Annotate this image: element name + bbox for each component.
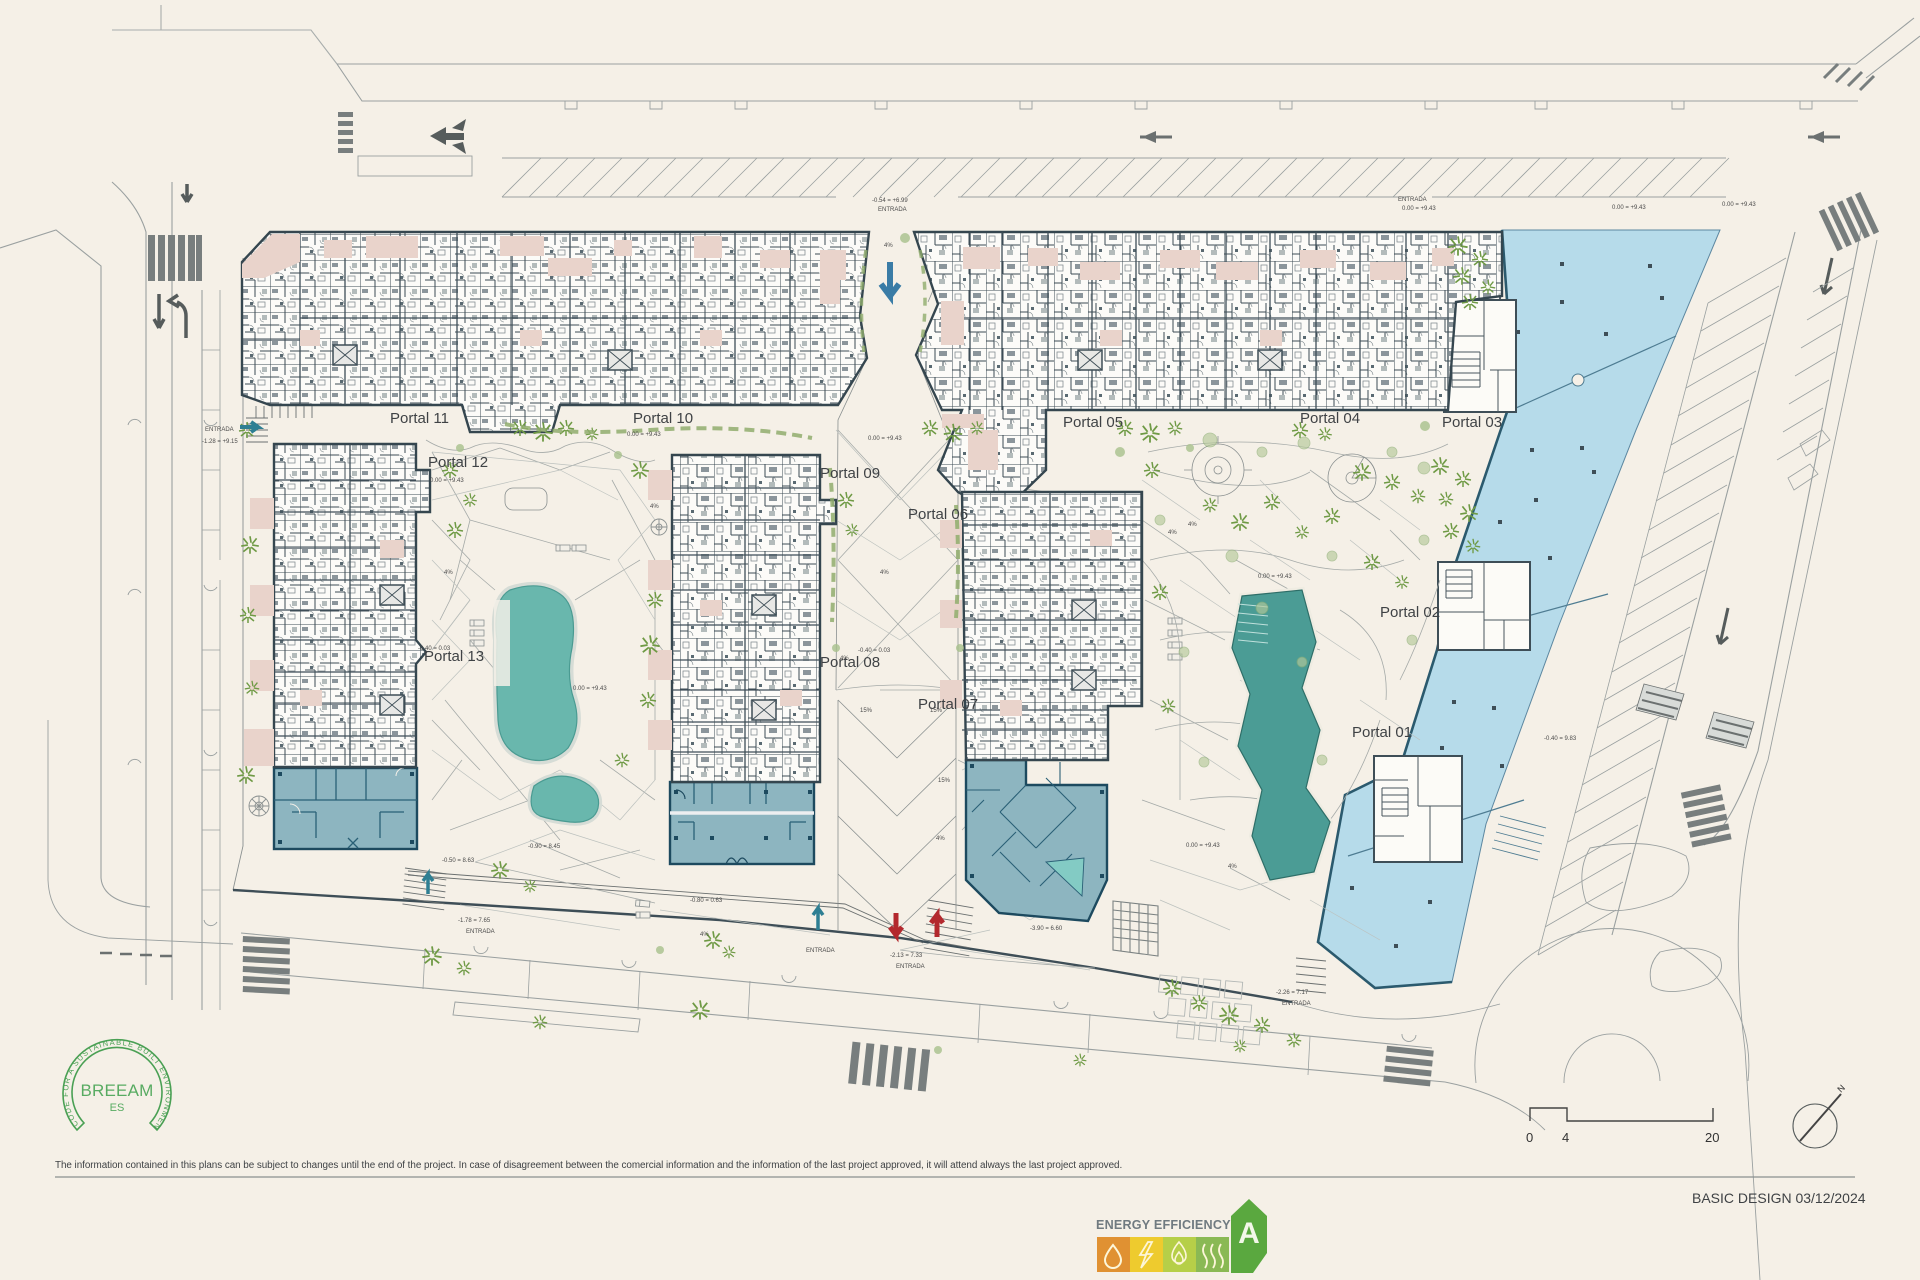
svg-text:4%: 4% <box>700 932 709 938</box>
svg-text:0.00 = +9.43: 0.00 = +9.43 <box>1722 202 1756 208</box>
svg-text:A: A <box>1238 1217 1260 1250</box>
svg-text:Portal 10: Portal 10 <box>633 410 693 427</box>
svg-text:ENTRADA: ENTRADA <box>806 948 835 954</box>
svg-text:-0.54 = +6.99: -0.54 = +6.99 <box>872 198 908 204</box>
svg-text:BREEAM: BREEAM <box>81 1081 154 1100</box>
svg-text:BASIC DESIGN 03/12/2024: BASIC DESIGN 03/12/2024 <box>1692 1190 1866 1206</box>
svg-text:ENTRADA: ENTRADA <box>1282 1001 1311 1007</box>
svg-text:ENTRADA: ENTRADA <box>205 427 234 433</box>
svg-text:4%: 4% <box>1228 864 1237 870</box>
svg-text:Portal 09: Portal 09 <box>820 465 880 482</box>
svg-text:4%: 4% <box>650 504 659 510</box>
svg-text:Portal 02: Portal 02 <box>1380 604 1440 621</box>
svg-text:15%: 15% <box>938 778 951 784</box>
svg-text:4%: 4% <box>840 656 849 662</box>
svg-text:-0.40 = 0.03: -0.40 = 0.03 <box>858 648 891 654</box>
svg-text:0.00 = +9.43: 0.00 = +9.43 <box>1258 574 1292 580</box>
svg-text:-0.40 = 9.83: -0.40 = 9.83 <box>1544 736 1577 742</box>
svg-text:Portal 01: Portal 01 <box>1352 724 1412 741</box>
svg-text:0.00 = +9.43: 0.00 = +9.43 <box>1612 205 1646 211</box>
svg-text:-0.80 = 0.63: -0.80 = 0.63 <box>690 898 723 904</box>
svg-text:0.00 = +9.43: 0.00 = +9.43 <box>1402 206 1436 212</box>
svg-text:-2.26 = 7.17: -2.26 = 7.17 <box>1276 990 1309 996</box>
svg-text:Portal 06: Portal 06 <box>908 506 968 523</box>
svg-text:Portal 07: Portal 07 <box>918 696 978 713</box>
svg-text:0.00 = +9.43: 0.00 = +9.43 <box>868 436 902 442</box>
svg-text:Portal 05: Portal 05 <box>1063 414 1123 431</box>
svg-text:15%: 15% <box>930 708 943 714</box>
svg-text:ENTRADA: ENTRADA <box>878 207 907 213</box>
svg-text:4%: 4% <box>884 243 893 249</box>
svg-text:4%: 4% <box>444 570 453 576</box>
svg-text:-1.78 = 7.65: -1.78 = 7.65 <box>458 918 491 924</box>
svg-text:The information contained in t: The information contained in this plans … <box>55 1160 1122 1171</box>
svg-text:ES: ES <box>110 1102 125 1114</box>
svg-text:Portal 04: Portal 04 <box>1300 410 1360 427</box>
svg-text:4: 4 <box>1562 1130 1569 1145</box>
svg-text:-0.50 = 8.63: -0.50 = 8.63 <box>442 858 475 864</box>
svg-text:-0.90 = 8.45: -0.90 = 8.45 <box>528 844 561 850</box>
svg-text:-2.13 = 7.33: -2.13 = 7.33 <box>890 953 923 959</box>
svg-text:Portal 12: Portal 12 <box>428 454 488 471</box>
svg-text:0.00 = +9.43: 0.00 = +9.43 <box>627 432 661 438</box>
svg-text:Portal 08: Portal 08 <box>820 654 880 671</box>
svg-text:ENERGY EFFICIENCY: ENERGY EFFICIENCY <box>1096 1218 1231 1232</box>
svg-text:ENTRADA: ENTRADA <box>466 929 495 935</box>
svg-text:0.00 = +9.43: 0.00 = +9.43 <box>1186 843 1220 849</box>
svg-text:4%: 4% <box>1168 530 1177 536</box>
svg-text:20: 20 <box>1705 1130 1719 1145</box>
svg-text:Portal 03: Portal 03 <box>1442 414 1502 431</box>
svg-text:-0.40 = 0.03: -0.40 = 0.03 <box>418 646 451 652</box>
svg-text:4%: 4% <box>880 570 889 576</box>
svg-text:ENTRADA: ENTRADA <box>896 964 925 970</box>
svg-text:0.00 = +9.43: 0.00 = +9.43 <box>573 686 607 692</box>
svg-text:15%: 15% <box>860 708 873 714</box>
svg-text:ENTRADA: ENTRADA <box>1398 197 1427 203</box>
svg-text:0.00 = +9.43: 0.00 = +9.43 <box>430 478 464 484</box>
svg-text:-3.90 = 6.60: -3.90 = 6.60 <box>1030 926 1063 932</box>
svg-text:Portal 11: Portal 11 <box>390 410 449 427</box>
svg-text:4%: 4% <box>936 836 945 842</box>
svg-text:4%: 4% <box>1188 522 1197 528</box>
svg-text:-1.28 = +9.15: -1.28 = +9.15 <box>202 439 238 445</box>
svg-text:0: 0 <box>1526 1130 1533 1145</box>
